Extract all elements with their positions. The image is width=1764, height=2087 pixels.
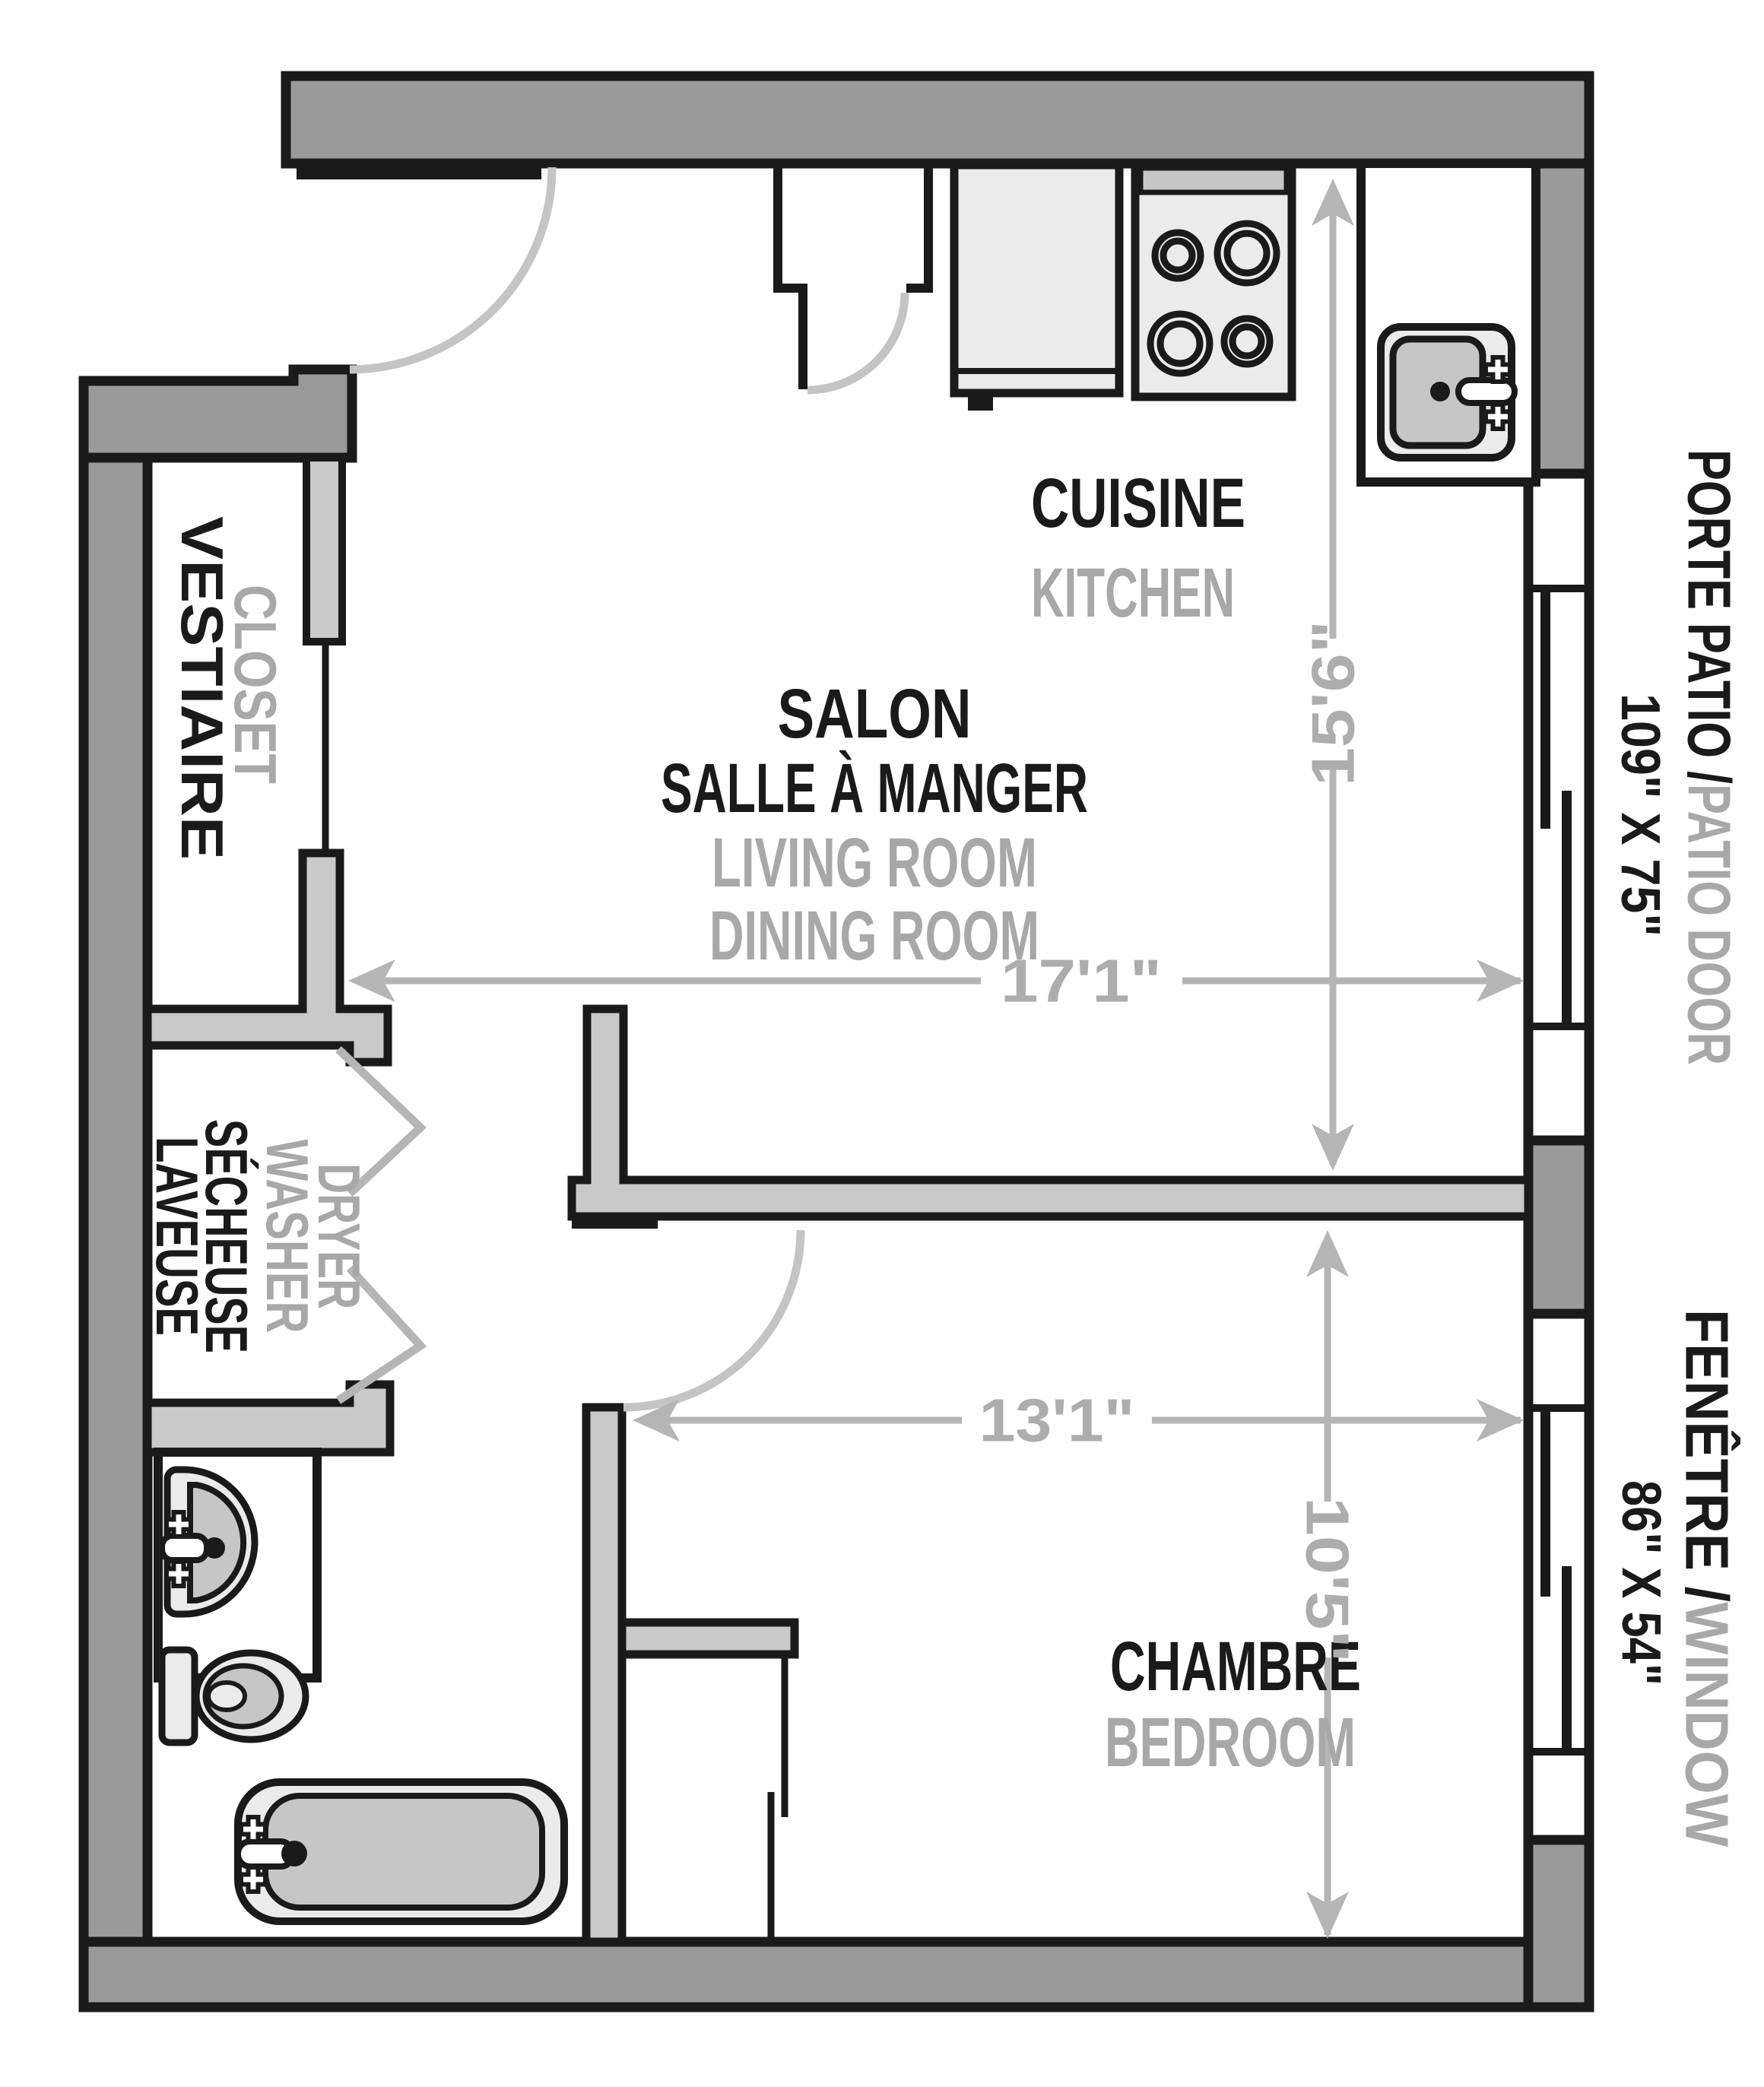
dimension-text-living-width: 17'1" xyxy=(1001,947,1162,1015)
window-label: FENÊTRE / WINDOW xyxy=(1674,1309,1741,1847)
living-label-en-1: LIVING ROOM xyxy=(712,824,1037,902)
window-label-en: WINDOW xyxy=(1674,1602,1741,1847)
patio-door-size: 109" X 75" xyxy=(1610,693,1670,937)
bedroom-closet-wall xyxy=(622,1622,795,1654)
patio-door xyxy=(1528,474,1589,1140)
bedroom-label-en: BEDROOM xyxy=(1105,1704,1356,1781)
fridge-handle xyxy=(968,393,993,411)
window-label-fr: FENÊTRE / xyxy=(1674,1309,1741,1602)
closet-label-en: CLOSET xyxy=(222,585,289,784)
toilet xyxy=(162,1650,306,1743)
window xyxy=(1528,1314,1589,1840)
closet-top-wall xyxy=(84,370,352,458)
right-wall-bottom-segment xyxy=(1528,1840,1589,2007)
patio-door-frame xyxy=(1528,474,1589,1140)
right-wall-mid-segment xyxy=(1528,1140,1589,1314)
bottom-wall xyxy=(84,1942,1589,2007)
window-size: 86" X 54" xyxy=(1610,1480,1671,1686)
bathtub-drain xyxy=(281,1841,307,1867)
left-wall xyxy=(84,381,148,2007)
patio-door-pane-1 xyxy=(1540,588,1550,829)
floor-plan-page: CUISINE KITCHEN SALON SALLE À MANGER LIV… xyxy=(0,0,1764,2087)
fridge xyxy=(954,165,1119,411)
toilet-tank xyxy=(162,1650,195,1743)
bedroom-doorway-lip xyxy=(572,1216,658,1229)
patio-door-pane-2 xyxy=(1562,791,1572,1026)
kitchen-faucet-spout xyxy=(1458,380,1515,403)
kitchen-label-en: KITCHEN xyxy=(1031,554,1235,632)
bathroom-bedroom-wall xyxy=(586,1407,622,1942)
window-pane-1 xyxy=(1540,1408,1550,1597)
dimension-text-bedroom-depth: 10'5" xyxy=(1294,1497,1362,1663)
stove-control-panel xyxy=(1141,168,1287,192)
living-label-en-2: DINING ROOM xyxy=(709,897,1039,975)
window-frame xyxy=(1528,1314,1589,1840)
laundry-label-en-2: DRYER xyxy=(306,1163,373,1309)
patio-door-label-en: PATIO DOOR xyxy=(1676,784,1743,1065)
dimension-text-living-depth: 15'6" xyxy=(1299,620,1367,786)
living-label-fr-1: SALON xyxy=(778,675,972,753)
stove xyxy=(1135,165,1292,397)
kitchen-label-fr: CUISINE xyxy=(1031,465,1245,542)
bathroom-sink-drain xyxy=(204,1537,225,1559)
alcove-jamb xyxy=(798,293,807,389)
kitchen-sink-drain xyxy=(1430,382,1450,401)
window-pane-2 xyxy=(1562,1566,1572,1752)
living-label-fr-2: SALLE À MANGER xyxy=(661,750,1088,827)
patio-door-label: PORTE PATIO / PATIO DOOR xyxy=(1676,449,1743,1065)
floor-plan: CUISINE KITCHEN SALON SALLE À MANGER LIV… xyxy=(0,0,1764,2087)
patio-door-label-fr: PORTE PATIO / xyxy=(1676,449,1743,784)
dimension-text-bedroom-width: 13'1" xyxy=(979,1387,1135,1454)
bathroom-sink xyxy=(158,1452,317,1678)
bathroom-faucet-spout xyxy=(162,1536,207,1560)
closet-sliding-panel xyxy=(306,458,342,642)
kitchen-sink xyxy=(1361,163,1536,482)
top-wall xyxy=(286,76,1589,163)
entry-door-header xyxy=(297,163,541,179)
bathtub xyxy=(238,1782,564,1921)
laundry-label-fr-2: SÉCHEUSE xyxy=(193,1119,260,1353)
